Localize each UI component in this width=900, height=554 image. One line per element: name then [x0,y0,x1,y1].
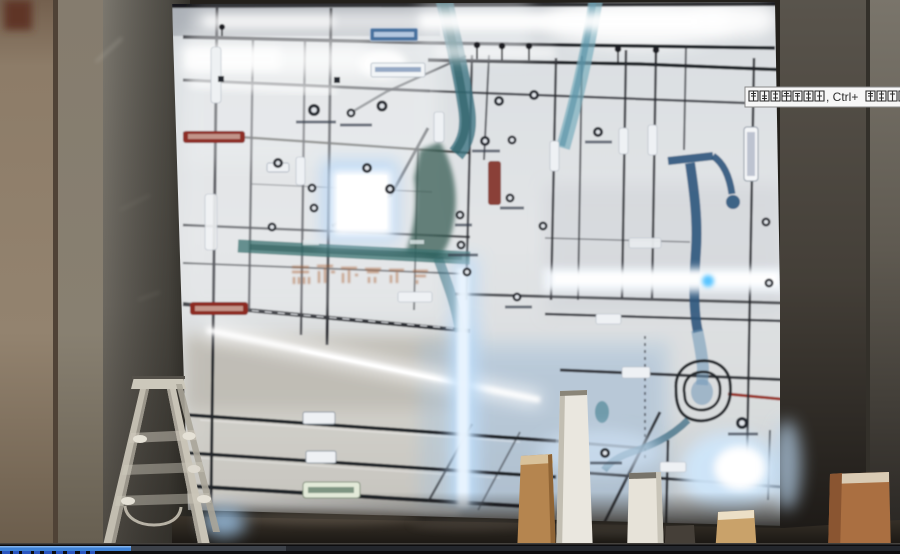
svg-text:, Ctrl+: , Ctrl+ [826,90,858,104]
